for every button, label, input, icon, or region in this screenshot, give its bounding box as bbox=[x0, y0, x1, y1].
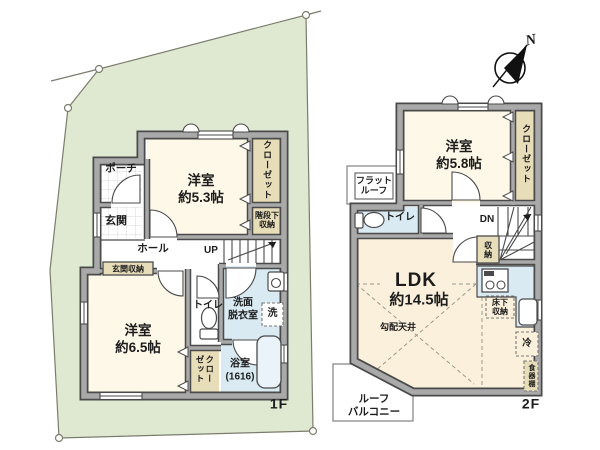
floorplan-image: ポーチ 玄関 ホール UP 洋室 約5.3帖 クローゼット 階段下 収納 玄関収… bbox=[0, 0, 600, 450]
washer-space bbox=[262, 303, 283, 326]
north-compass bbox=[493, 45, 527, 87]
floor2-plan bbox=[333, 96, 542, 421]
floor1-plan bbox=[81, 124, 288, 400]
storage-box-2f bbox=[477, 236, 499, 263]
entrance-storage-box bbox=[103, 262, 153, 275]
floorplan-drawing bbox=[0, 0, 600, 450]
